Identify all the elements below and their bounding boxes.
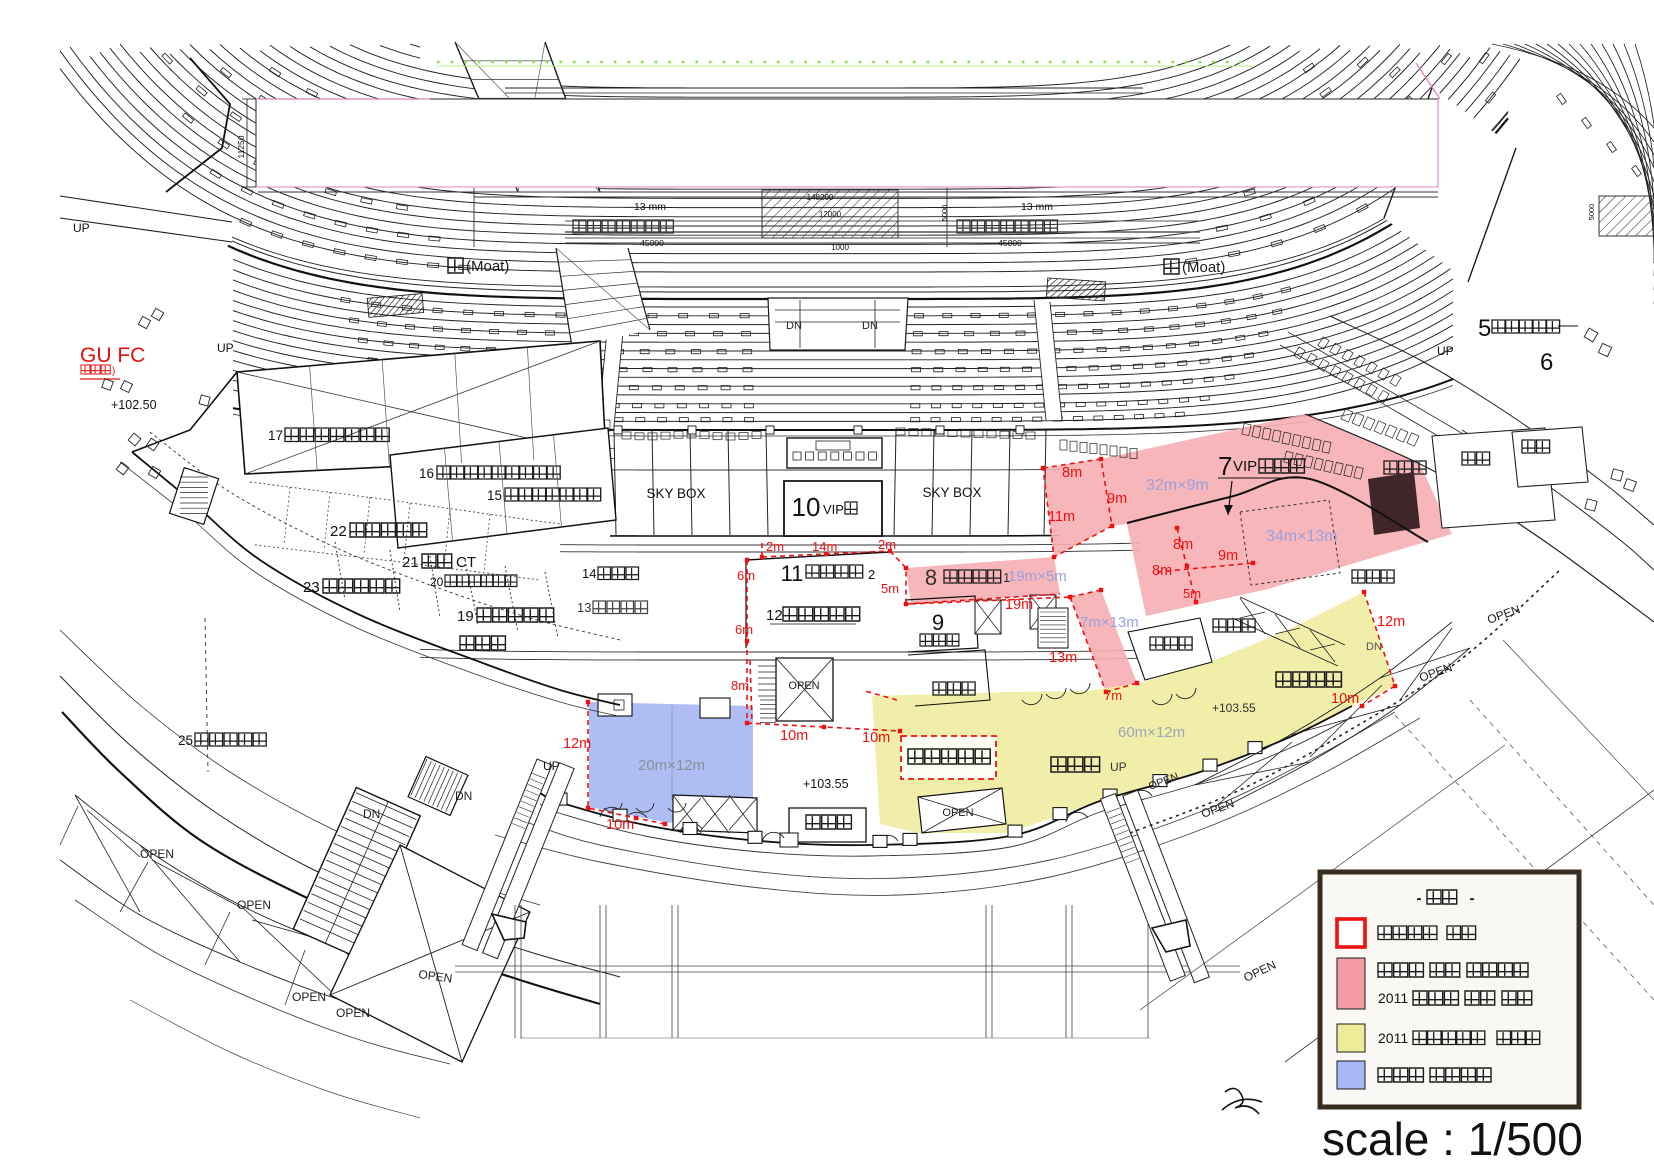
svg-text:DN: DN bbox=[1366, 641, 1382, 653]
svg-text:5000: 5000 bbox=[940, 205, 949, 222]
svg-text:DN: DN bbox=[786, 320, 802, 332]
svg-text:OPEN: OPEN bbox=[237, 898, 271, 912]
svg-text:5m: 5m bbox=[1183, 586, 1201, 601]
svg-text:45000: 45000 bbox=[640, 238, 664, 248]
svg-text:10m: 10m bbox=[1331, 691, 1359, 707]
svg-text:25: 25 bbox=[178, 733, 193, 748]
svg-text:8m: 8m bbox=[1173, 537, 1193, 553]
svg-text:13 mm: 13 mm bbox=[1021, 201, 1053, 213]
svg-text:+103.55: +103.55 bbox=[1212, 701, 1256, 715]
svg-text:13: 13 bbox=[577, 600, 591, 615]
svg-text:8m: 8m bbox=[1152, 563, 1172, 579]
svg-text:19: 19 bbox=[457, 608, 474, 625]
svg-text:20: 20 bbox=[430, 575, 444, 589]
svg-text:15: 15 bbox=[487, 488, 502, 503]
svg-text:DN: DN bbox=[363, 807, 380, 821]
svg-text:5000: 5000 bbox=[1587, 204, 1596, 221]
svg-text:21: 21 bbox=[402, 554, 419, 571]
svg-text:SKY BOX: SKY BOX bbox=[646, 486, 705, 501]
svg-text:8m: 8m bbox=[731, 678, 749, 693]
svg-text:1000: 1000 bbox=[831, 243, 849, 252]
svg-text:8m: 8m bbox=[1062, 465, 1082, 481]
svg-text:(Moat): (Moat) bbox=[466, 258, 509, 275]
svg-text:2: 2 bbox=[868, 567, 875, 582]
svg-text:6m: 6m bbox=[735, 622, 753, 637]
svg-text:20m×12m: 20m×12m bbox=[638, 757, 705, 774]
svg-text:11250: 11250 bbox=[236, 135, 246, 158]
svg-text:DN: DN bbox=[455, 789, 472, 803]
svg-text:-: - bbox=[1417, 890, 1422, 907]
svg-text:VIP: VIP bbox=[823, 502, 844, 517]
svg-text:OPEN: OPEN bbox=[336, 1006, 370, 1020]
svg-text:14m: 14m bbox=[812, 539, 837, 554]
svg-text:OPEN: OPEN bbox=[942, 807, 973, 819]
svg-text:34m×13m: 34m×13m bbox=[1266, 528, 1338, 545]
svg-text:UP: UP bbox=[1437, 344, 1454, 358]
svg-text:9m: 9m bbox=[1218, 548, 1238, 564]
svg-text:5m: 5m bbox=[881, 581, 899, 596]
svg-text:10m: 10m bbox=[862, 730, 890, 746]
svg-text:): ) bbox=[112, 366, 115, 377]
svg-text:2011: 2011 bbox=[1378, 990, 1408, 1006]
svg-text:12m: 12m bbox=[563, 736, 591, 752]
svg-text:2m: 2m bbox=[766, 539, 784, 554]
svg-text:12000: 12000 bbox=[819, 210, 842, 219]
svg-text:12: 12 bbox=[766, 607, 783, 624]
svg-text:13m: 13m bbox=[1049, 650, 1077, 666]
svg-text:19m×5m: 19m×5m bbox=[1008, 568, 1067, 585]
svg-text:GU FC: GU FC bbox=[80, 344, 145, 367]
svg-text:8: 8 bbox=[925, 565, 937, 590]
svg-text:6m: 6m bbox=[737, 568, 755, 583]
svg-text:7: 7 bbox=[1218, 451, 1232, 481]
svg-text:+102.50: +102.50 bbox=[111, 398, 157, 412]
svg-text:VIP: VIP bbox=[1233, 458, 1257, 475]
svg-text:16: 16 bbox=[419, 466, 434, 481]
svg-text:12m: 12m bbox=[1377, 614, 1405, 630]
svg-text:UP: UP bbox=[1110, 760, 1127, 774]
svg-text:scale : 1/500: scale : 1/500 bbox=[1322, 1113, 1583, 1165]
svg-text:10m: 10m bbox=[780, 728, 808, 744]
svg-text:10m: 10m bbox=[606, 817, 634, 833]
svg-text:2011: 2011 bbox=[1378, 1030, 1408, 1046]
svg-text:7m: 7m bbox=[1104, 688, 1122, 703]
svg-text:2m: 2m bbox=[878, 537, 896, 552]
svg-text:OPEN: OPEN bbox=[292, 990, 326, 1004]
svg-text:+103.55: +103.55 bbox=[803, 777, 849, 791]
svg-text:10: 10 bbox=[792, 492, 821, 522]
svg-text:9m: 9m bbox=[1107, 491, 1127, 507]
svg-text:UP: UP bbox=[217, 341, 234, 355]
svg-text:23: 23 bbox=[303, 579, 320, 596]
svg-text:22: 22 bbox=[330, 523, 347, 540]
svg-text:11m: 11m bbox=[1048, 509, 1075, 525]
svg-text:OPEN: OPEN bbox=[788, 680, 819, 692]
svg-text:(Moat): (Moat) bbox=[1182, 259, 1225, 276]
svg-text:6: 6 bbox=[1540, 349, 1553, 376]
svg-text:148200: 148200 bbox=[807, 193, 834, 202]
svg-text:5: 5 bbox=[1478, 315, 1491, 342]
svg-text:OPEN: OPEN bbox=[140, 847, 174, 861]
svg-text:UP: UP bbox=[73, 221, 90, 235]
svg-text:45000: 45000 bbox=[998, 238, 1022, 248]
svg-text:SKY BOX: SKY BOX bbox=[922, 485, 981, 500]
svg-text:UP: UP bbox=[543, 759, 560, 773]
svg-text:7m×13m: 7m×13m bbox=[1080, 614, 1139, 631]
svg-text:9: 9 bbox=[932, 610, 944, 635]
svg-text:32m×9m: 32m×9m bbox=[1146, 477, 1209, 494]
svg-text:CT: CT bbox=[456, 554, 476, 571]
svg-text:17: 17 bbox=[268, 428, 283, 443]
svg-text:DN: DN bbox=[862, 320, 878, 332]
svg-text:13 mm: 13 mm bbox=[634, 201, 666, 213]
svg-text:11: 11 bbox=[781, 561, 804, 586]
svg-text:-: - bbox=[1470, 890, 1475, 907]
svg-text:60m×12m: 60m×12m bbox=[1118, 724, 1185, 741]
svg-text:14: 14 bbox=[582, 566, 596, 581]
